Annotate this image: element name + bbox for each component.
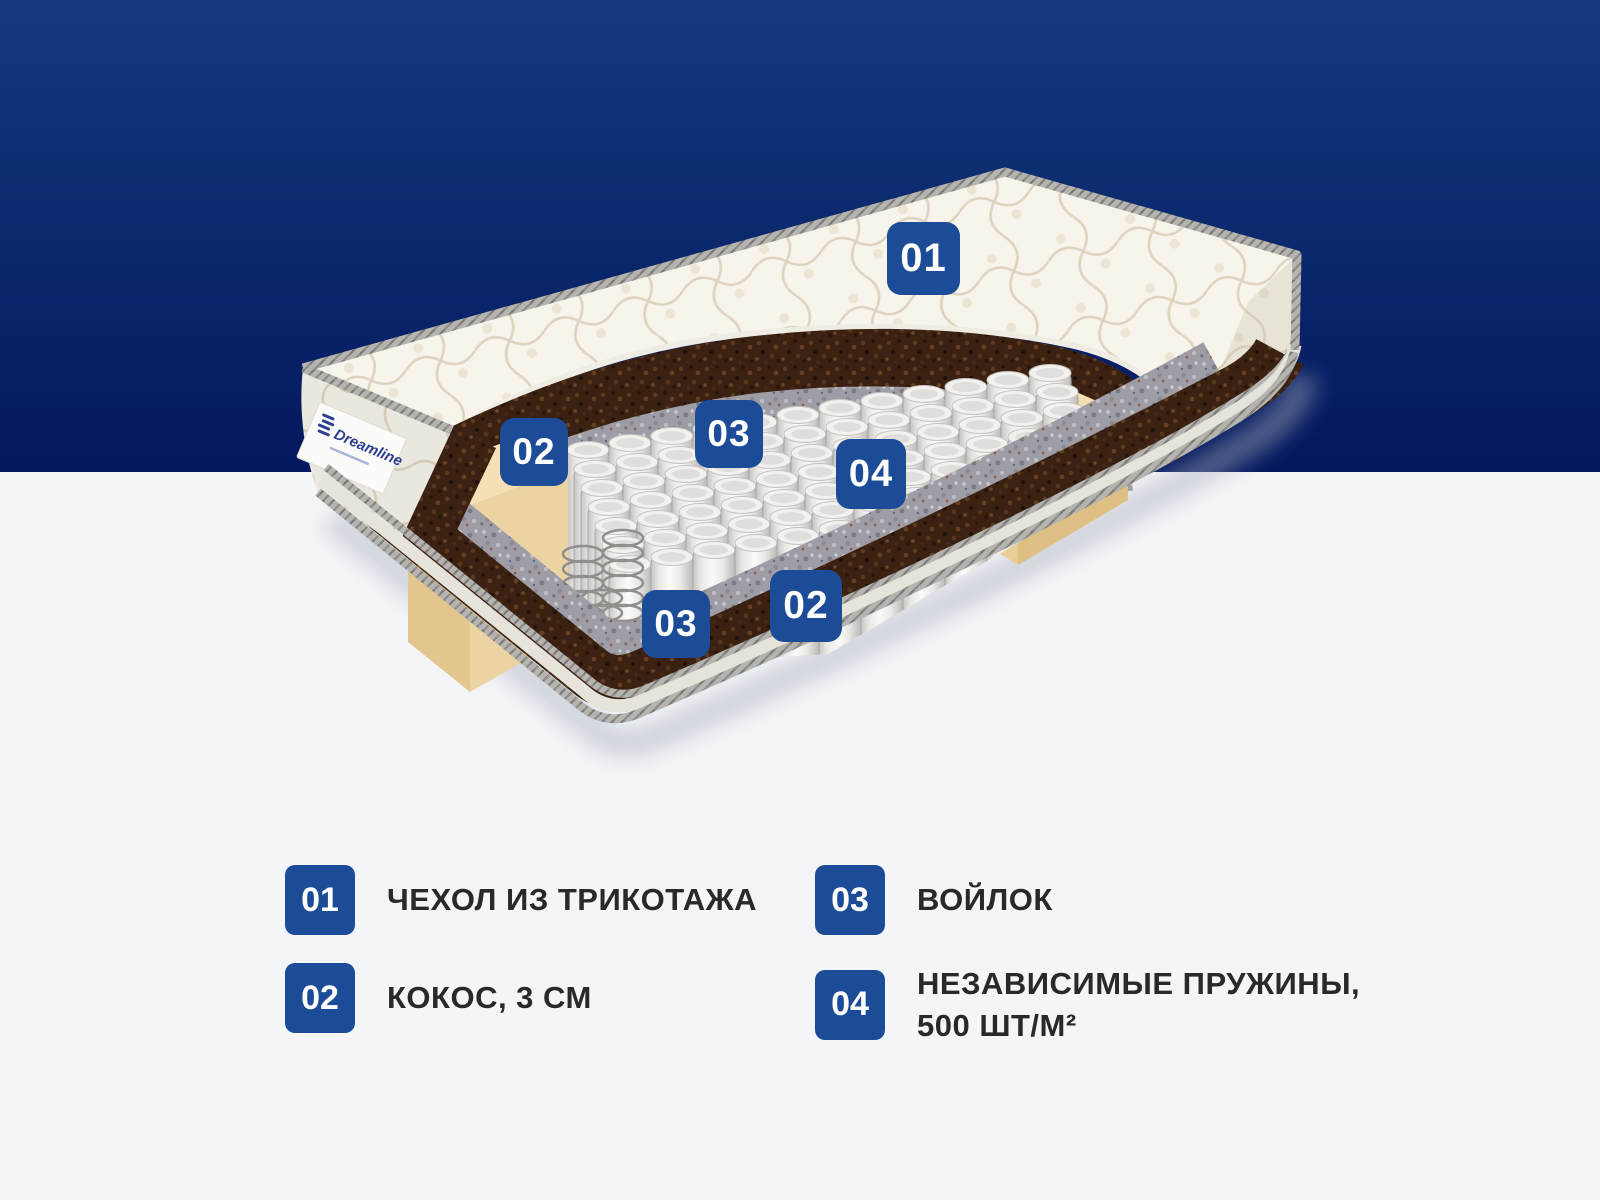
legend-item-04: 04 НЕЗАВИСИМЫЕ ПРУЖИНЫ, 500 ШТ/М² (815, 963, 1387, 1047)
legend-item-03: 03 ВОЙЛОК (815, 865, 1053, 935)
legend-item-01: 01 ЧЕХОЛ ИЗ ТРИКОТАЖА (285, 865, 757, 935)
product-layers-diagram: Dreamline 01 02 03 04 03 02 01 ЧЕХОЛ ИЗ … (0, 0, 1600, 1200)
legend-number-badge-02: 02 (285, 963, 355, 1033)
legend-number-badge-04: 04 (815, 970, 885, 1040)
diagram-badge-04: 04 (836, 439, 906, 509)
legend-number-badge-01: 01 (285, 865, 355, 935)
diagram-badge-03-lower: 03 (642, 590, 710, 658)
diagram-badge-02: 02 (500, 418, 568, 486)
legend-label-02: КОКОС, 3 СМ (387, 977, 592, 1019)
diagram-badge-02-lower: 02 (770, 570, 842, 642)
legend-label-04: НЕЗАВИСИМЫЕ ПРУЖИНЫ, 500 ШТ/М² (917, 963, 1387, 1047)
legend-number-badge-03: 03 (815, 865, 885, 935)
diagram-badge-03: 03 (695, 400, 763, 468)
legend-label-01: ЧЕХОЛ ИЗ ТРИКОТАЖА (387, 879, 757, 921)
diagram-badge-01: 01 (887, 222, 960, 295)
legend-label-03: ВОЙЛОК (917, 879, 1053, 921)
legend-item-02: 02 КОКОС, 3 СМ (285, 963, 592, 1033)
